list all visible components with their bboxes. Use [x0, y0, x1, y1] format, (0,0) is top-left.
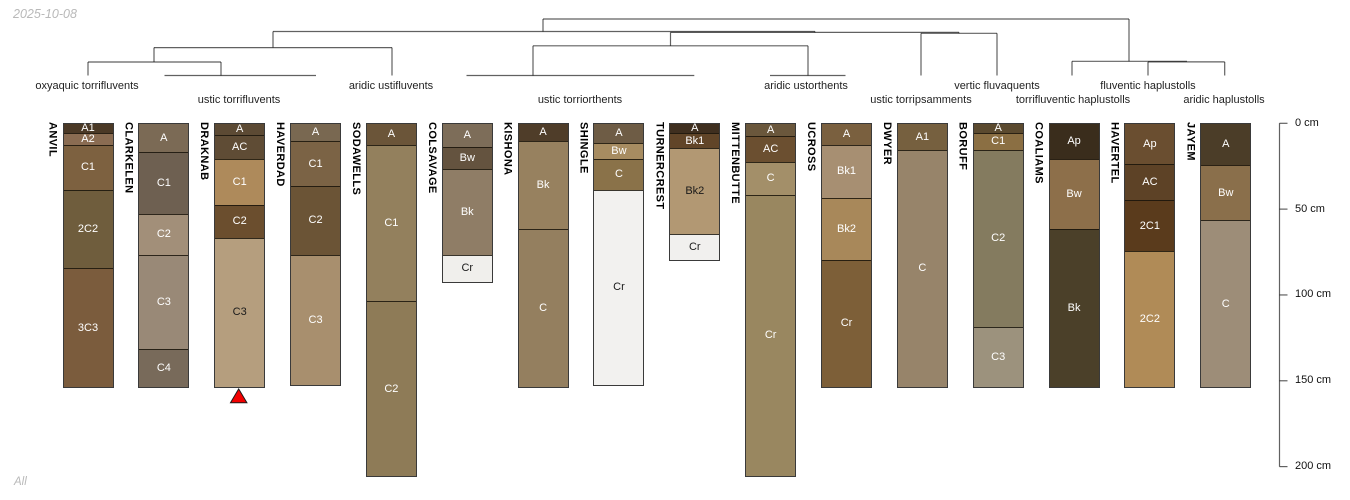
horizon-UCROSS-A: A: [822, 124, 871, 145]
profile-column-SHINGLE: ABwCCr: [593, 123, 644, 386]
profile-name-COALIAMS: COALIAMS: [1032, 122, 1046, 184]
horizon-ANVIL-C1: C1: [64, 145, 113, 190]
horizon-ANVIL-A1: A1: [64, 124, 113, 133]
horizon-label: Cr: [765, 331, 777, 340]
horizon-DRAKNAB-A: A: [215, 124, 264, 134]
horizon-ANVIL-3C3: 3C3: [64, 268, 113, 386]
profile-column-MITTENBUTTE: AACCCr: [745, 123, 796, 477]
horizon-ANVIL-2C2: 2C2: [64, 190, 113, 269]
horizon-HAVERTEL-2C2: 2C2: [1125, 251, 1174, 387]
horizon-label: Bk2: [837, 225, 856, 234]
horizon-label: C1: [157, 179, 171, 188]
horizon-COLSAVAGE-A: A: [443, 124, 492, 146]
horizon-COLSAVAGE-Bk: Bk: [443, 169, 492, 255]
horizon-TURNERCREST-Bk2: Bk2: [670, 148, 719, 234]
horizon-KISHONA-A: A: [519, 124, 568, 141]
profile-column-HAVERTEL: ApAC2C12C2: [1124, 123, 1175, 388]
profile-column-COLSAVAGE: ABwBkCr: [442, 123, 493, 283]
horizon-KISHONA-Bk: Bk: [519, 141, 568, 229]
horizon-label: A: [843, 130, 850, 139]
horizon-CLARKELEN-C3: C3: [139, 255, 188, 349]
horizon-label: Ap: [1143, 140, 1156, 149]
horizon-label: Bk1: [685, 137, 704, 146]
horizon-label: 2C2: [78, 225, 98, 234]
horizon-HAVERTEL-2C1: 2C1: [1125, 200, 1174, 251]
profile-name-SODAWELLS: SODAWELLS: [349, 122, 363, 195]
date-stamp: 2025-10-08: [13, 7, 77, 21]
taxon-label-ustic-torriorthents: ustic torriorthents: [430, 94, 730, 106]
profile-name-UCROSS: UCROSS: [804, 122, 818, 171]
horizon-label: AC: [1142, 178, 1157, 187]
horizon-BORUFF-A: A: [974, 124, 1023, 133]
depth-axis-tick-label: 150 cm: [1295, 373, 1331, 387]
horizon-KISHONA-C: C: [519, 229, 568, 387]
horizon-label: C2: [157, 230, 171, 239]
horizon-TURNERCREST-A: A: [670, 124, 719, 133]
profile-name-HAVERTEL: HAVERTEL: [1107, 122, 1121, 184]
horizon-label: A: [691, 124, 698, 133]
figure-canvas: 2025-10-08 oxyaquic torrifluventsustic t…: [0, 0, 1350, 500]
profile-name-DRAKNAB: DRAKNAB: [197, 122, 211, 180]
horizon-label: C3: [157, 298, 171, 307]
horizon-label: Bk: [1068, 304, 1081, 313]
horizon-label: Bk2: [685, 187, 704, 196]
horizon-label: Bw: [1066, 190, 1081, 199]
horizon-label: Cr: [461, 264, 473, 273]
depth-axis-tick-label: 50 cm: [1295, 202, 1325, 216]
horizon-label: Bk: [537, 181, 550, 190]
horizon-SODAWELLS-C2: C2: [367, 301, 416, 476]
horizon-label: C1: [81, 163, 95, 172]
horizon-label: A: [539, 128, 546, 137]
horizon-MITTENBUTTE-A: A: [746, 124, 795, 136]
depth-axis-tick-label: 100 cm: [1295, 287, 1331, 301]
horizon-label: AC: [763, 145, 778, 154]
horizon-DRAKNAB-C3: C3: [215, 238, 264, 387]
profile-column-UCROSS: ABk1Bk2Cr: [821, 123, 872, 388]
horizon-SHINGLE-Cr: Cr: [594, 190, 643, 386]
horizon-HAVERDAD-C3: C3: [291, 255, 340, 385]
profile-name-HAVERDAD: HAVERDAD: [273, 122, 287, 187]
horizon-label: A: [312, 128, 319, 137]
profile-column-HAVERDAD: AC1C2C3: [290, 123, 341, 386]
taxon-label-aridic-haplustolls: aridic haplustolls: [1074, 94, 1350, 106]
horizon-label: C3: [309, 316, 323, 325]
figure-id-label: All: [14, 476, 27, 488]
horizon-label: C2: [233, 217, 247, 226]
depth-axis-tick-label: 0 cm: [1295, 116, 1319, 130]
horizon-label: C: [767, 174, 775, 183]
horizon-label: A: [1222, 140, 1229, 149]
horizon-label: A: [767, 126, 774, 135]
horizon-DRAKNAB-C1: C1: [215, 159, 264, 205]
horizon-COLSAVAGE-Cr: Cr: [443, 255, 492, 282]
horizon-label: Ap: [1067, 137, 1080, 146]
horizon-COLSAVAGE-Bw: Bw: [443, 147, 492, 169]
horizon-label: C4: [157, 364, 171, 373]
profile-column-KISHONA: ABkC: [518, 123, 569, 388]
horizon-label: A: [388, 130, 395, 139]
horizon-TURNERCREST-Bk1: Bk1: [670, 133, 719, 148]
horizon-label: Cr: [841, 319, 853, 328]
horizon-label: C3: [233, 308, 247, 317]
profile-name-ANVIL: ANVIL: [46, 122, 60, 157]
horizon-label: C1: [384, 219, 398, 228]
horizon-HAVERDAD-C1: C1: [291, 141, 340, 186]
horizon-label: Bw: [460, 154, 475, 163]
profile-name-JAYEM: JAYEM: [1183, 122, 1197, 161]
horizon-label: Bw: [1218, 189, 1233, 198]
taxon-label-fluventic-haplustolls: fluventic haplustolls: [998, 80, 1298, 92]
taxon-label-ustic-torrifluvents: ustic torrifluvents: [89, 94, 389, 106]
horizon-label: A: [236, 125, 243, 134]
horizon-label: C1: [991, 137, 1005, 146]
horizon-BORUFF-C1: C1: [974, 133, 1023, 150]
horizon-label: A: [464, 131, 471, 140]
horizon-CLARKELEN-C1: C1: [139, 152, 188, 214]
horizon-BORUFF-C3: C3: [974, 327, 1023, 387]
profile-name-CLARKELEN: CLARKELEN: [121, 122, 135, 193]
horizon-label: Cr: [613, 283, 625, 292]
horizon-label: 2C2: [1140, 315, 1160, 324]
taxon-label-aridic-ustifluvents: aridic ustifluvents: [241, 80, 541, 92]
profile-column-SODAWELLS: AC1C2: [366, 123, 417, 477]
flag-triangle-icon: [231, 389, 247, 403]
horizon-MITTENBUTTE-C: C: [746, 162, 795, 195]
horizon-SODAWELLS-C1: C1: [367, 145, 416, 301]
taxon-label-oxyaquic-torrifluvents: oxyaquic torrifluvents: [0, 80, 237, 92]
horizon-label: C2: [384, 385, 398, 394]
horizon-label: A: [160, 134, 167, 143]
horizon-label: A: [615, 129, 622, 138]
horizon-COALIAMS-Bw: Bw: [1050, 159, 1099, 229]
horizon-HAVERTEL-AC: AC: [1125, 164, 1174, 200]
horizon-HAVERTEL-Ap: Ap: [1125, 124, 1174, 163]
profile-name-COLSAVAGE: COLSAVAGE: [425, 122, 439, 194]
horizon-CLARKELEN-A: A: [139, 124, 188, 151]
horizon-DRAKNAB-C2: C2: [215, 205, 264, 238]
profile-name-SHINGLE: SHINGLE: [576, 122, 590, 174]
profile-name-MITTENBUTTE: MITTENBUTTE: [728, 122, 742, 204]
profile-column-TURNERCREST: ABk1Bk2Cr: [669, 123, 720, 261]
horizon-label: C: [615, 170, 623, 179]
horizon-label: AC: [232, 143, 247, 152]
horizon-JAYEM-Bw: Bw: [1201, 165, 1250, 220]
horizon-HAVERDAD-C2: C2: [291, 186, 340, 255]
horizon-label: C1: [309, 160, 323, 169]
horizon-CLARKELEN-C2: C2: [139, 214, 188, 255]
horizon-SHINGLE-A: A: [594, 124, 643, 143]
profile-column-ANVIL: A1A2C12C23C3: [63, 123, 114, 388]
depth-axis-tick-label: 200 cm: [1295, 459, 1331, 473]
horizon-DWYER-C: C: [898, 150, 947, 387]
profile-name-KISHONA: KISHONA: [501, 122, 515, 176]
horizon-label: Cr: [689, 243, 701, 252]
horizon-SHINGLE-Bw: Bw: [594, 143, 643, 158]
horizon-SHINGLE-C: C: [594, 159, 643, 190]
horizon-label: Bk1: [837, 167, 856, 176]
horizon-label: C: [1222, 300, 1230, 309]
horizon-BORUFF-C2: C2: [974, 150, 1023, 327]
horizon-JAYEM-A: A: [1201, 124, 1250, 165]
horizon-CLARKELEN-C4: C4: [139, 349, 188, 387]
profile-column-DWYER: A1C: [897, 123, 948, 388]
profile-name-DWYER: DWYER: [880, 122, 894, 165]
horizon-label: C: [918, 264, 926, 273]
profile-column-JAYEM: ABwC: [1200, 123, 1251, 388]
horizon-TURNERCREST-Cr: Cr: [670, 234, 719, 260]
horizon-COALIAMS-Bk: Bk: [1050, 229, 1099, 387]
horizon-JAYEM-C: C: [1201, 220, 1250, 387]
profile-name-BORUFF: BORUFF: [956, 122, 970, 170]
horizon-label: 3C3: [78, 324, 98, 333]
horizon-UCROSS-Cr: Cr: [822, 260, 871, 387]
horizon-MITTENBUTTE-Cr: Cr: [746, 195, 795, 477]
profile-column-BORUFF: AC1C2C3: [973, 123, 1024, 388]
horizon-UCROSS-Bk1: Bk1: [822, 145, 871, 198]
horizon-DRAKNAB-AC: AC: [215, 135, 264, 159]
horizon-label: Bw: [611, 147, 626, 156]
profile-column-DRAKNAB: AACC1C2C3: [214, 123, 265, 388]
horizon-label: C1: [233, 178, 247, 187]
horizon-label: C2: [309, 216, 323, 225]
horizon-label: A1: [81, 124, 94, 133]
horizon-ANVIL-A2: A2: [64, 133, 113, 145]
horizon-label: A2: [81, 135, 94, 144]
horizon-UCROSS-Bk2: Bk2: [822, 198, 871, 260]
horizon-label: A1: [916, 133, 929, 142]
horizon-label: A: [995, 124, 1002, 133]
profile-name-TURNERCREST: TURNERCREST: [652, 122, 666, 210]
horizon-label: C: [539, 304, 547, 313]
horizon-SODAWELLS-A: A: [367, 124, 416, 145]
horizon-label: 2C1: [1140, 222, 1160, 231]
horizon-COALIAMS-Ap: Ap: [1050, 124, 1099, 158]
horizon-label: C3: [991, 353, 1005, 362]
profile-column-COALIAMS: ApBwBk: [1049, 123, 1100, 388]
horizon-label: C2: [991, 234, 1005, 243]
horizon-MITTENBUTTE-AC: AC: [746, 136, 795, 162]
horizon-label: Bk: [461, 208, 474, 217]
horizon-HAVERDAD-A: A: [291, 124, 340, 141]
horizon-DWYER-A1: A1: [898, 124, 947, 150]
profile-column-CLARKELEN: AC1C2C3C4: [138, 123, 189, 388]
